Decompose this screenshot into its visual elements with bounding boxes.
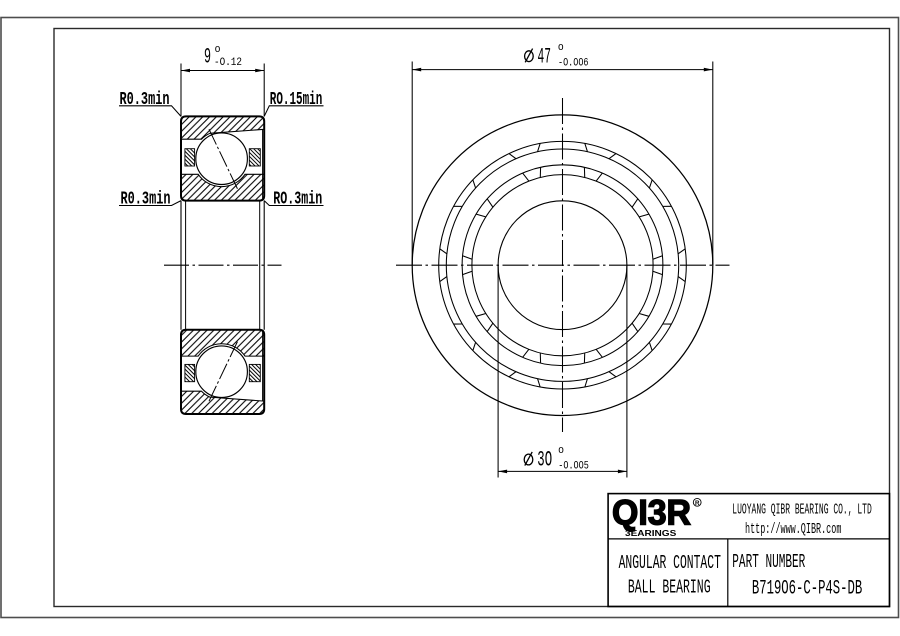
svg-text:-O.12: -O.12 bbox=[214, 57, 242, 69]
svg-text:O: O bbox=[558, 445, 564, 456]
svg-text:R0.3min: R0.3min bbox=[120, 90, 170, 110]
svg-text:BALL BEARING: BALL BEARING bbox=[628, 577, 711, 599]
svg-text:B719O6-C-P4S-DB: B719O6-C-P4S-DB bbox=[752, 578, 862, 601]
svg-text:R: R bbox=[695, 500, 700, 507]
svg-text:-O.OO6: -O.OO6 bbox=[558, 57, 589, 69]
svg-text:PART NUMBER: PART NUMBER bbox=[732, 551, 805, 573]
svg-text:3EARINGS: 3EARINGS bbox=[625, 529, 676, 538]
svg-text:3O: 3O bbox=[537, 447, 552, 473]
svg-text:47: 47 bbox=[538, 43, 552, 69]
svg-text:QI3R: QI3R bbox=[612, 494, 691, 533]
svg-text:RO.15min: RO.15min bbox=[270, 90, 323, 110]
svg-text:O: O bbox=[558, 42, 564, 53]
svg-text:O: O bbox=[215, 44, 221, 55]
svg-text:R0.3min: R0.3min bbox=[121, 190, 171, 210]
svg-text:ANGULAR CONTACT: ANGULAR CONTACT bbox=[619, 552, 721, 574]
svg-text:9: 9 bbox=[204, 43, 211, 69]
svg-text:LUOYANG QIBR BEARING CO., LTD: LUOYANG QIBR BEARING CO., LTD bbox=[732, 502, 872, 518]
svg-text:-O.OO5: -O.OO5 bbox=[558, 461, 589, 473]
svg-text:RO.3min: RO.3min bbox=[273, 190, 322, 210]
svg-text:http://www.QIBR.com: http://www.QIBR.com bbox=[745, 522, 841, 538]
